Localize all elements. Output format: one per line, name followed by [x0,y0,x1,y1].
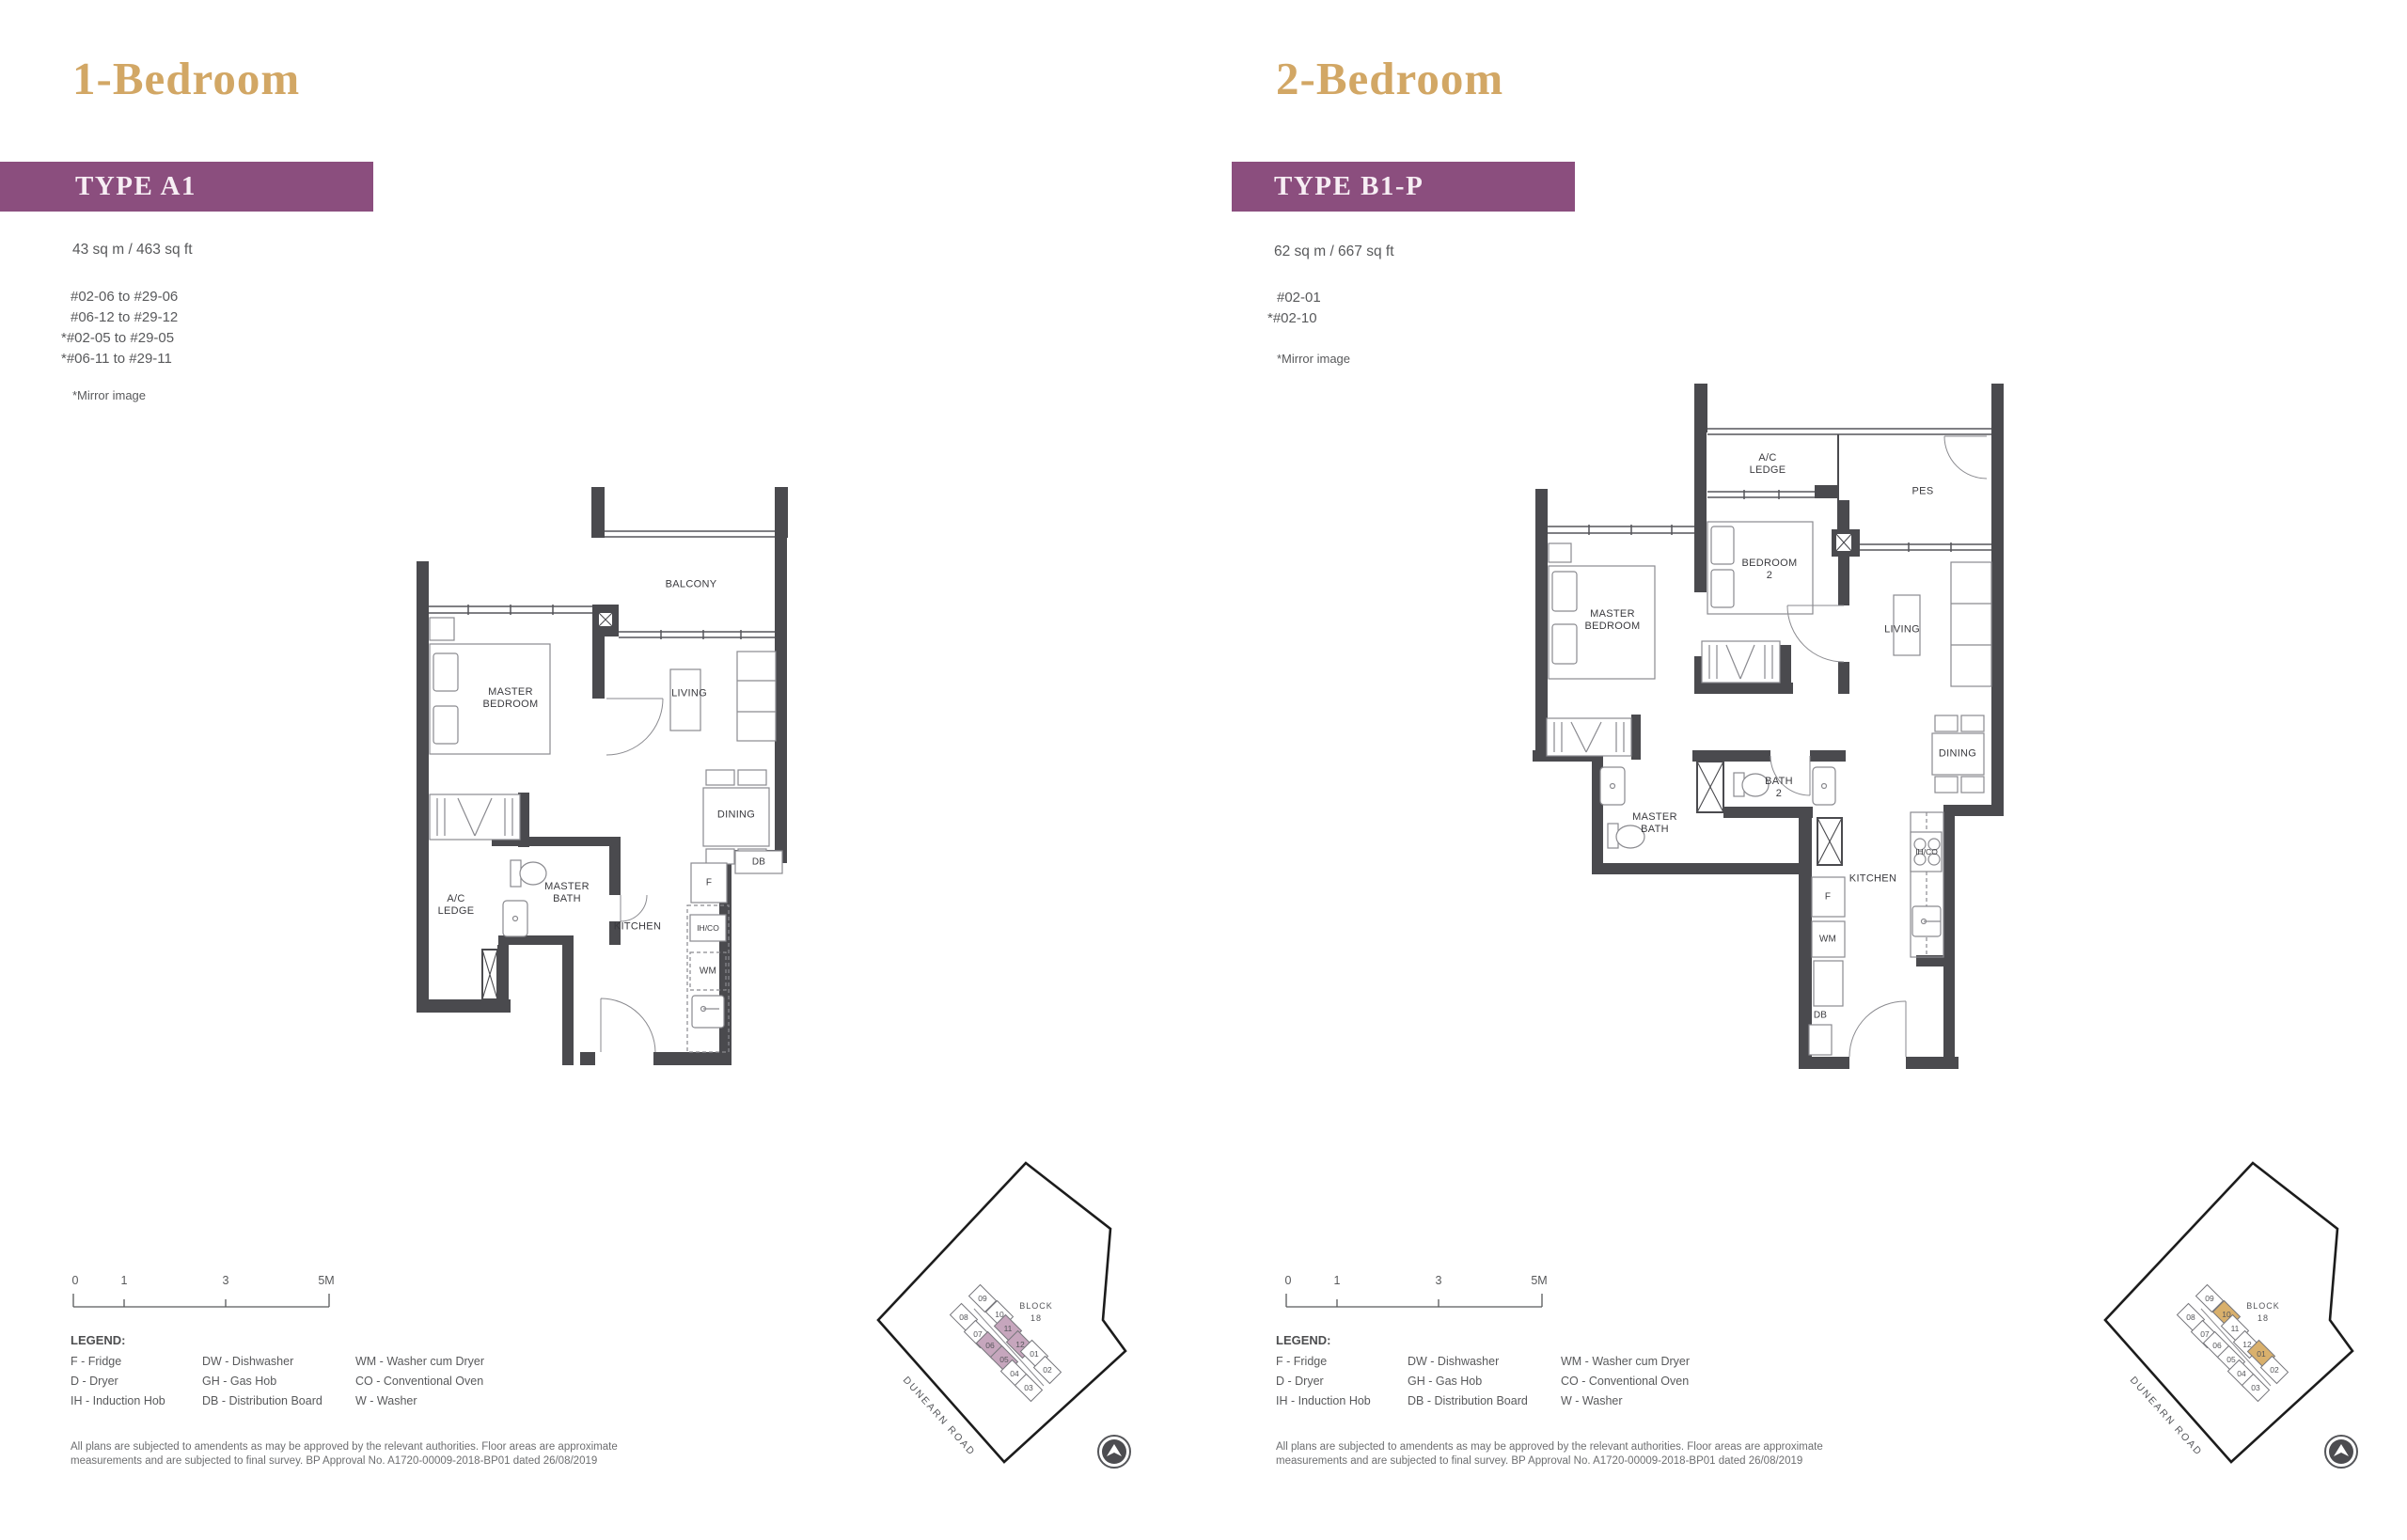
appliance-label-wm: WM [700,966,716,977]
legend-item: F - Fridge [1276,1352,1408,1372]
svg-text:1: 1 [121,1274,128,1287]
room-label-ac-ledge: A/C LEDGE [438,893,475,918]
legend-item: WM - Washer cum Dryer [355,1352,484,1372]
unit-range: #02-06 to #29-06 [61,287,178,307]
unit-range: *#02-05 to #29-05 [61,328,178,349]
room-label-master-bedroom: MASTER BEDROOM [1585,608,1641,633]
site-unit-number: 11 [1004,1324,1013,1333]
area-text-a1: 43 sq m / 463 sq ft [72,242,193,259]
room-label-living: LIVING [671,687,707,699]
site-unit-number: 04 [2237,1369,2246,1378]
legend-item: CO - Conventional Oven [355,1372,484,1391]
svg-text:5M: 5M [318,1274,334,1287]
site-unit-number: 05 [2226,1355,2236,1364]
unit-list-b1p: #02-01 *#02-10 [1267,288,1321,329]
floorplan-a1: BALCONY MASTER BEDROOM LIVING DINING A/C… [417,475,830,1086]
legend-item: F - Fridge [71,1352,202,1372]
north-arrow-icon [1098,1436,1130,1468]
site-unit-number: 09 [978,1294,987,1303]
svg-text:18: 18 [2258,1313,2269,1323]
floorplan-b1p-drawing [1533,384,2012,1070]
legend-item: D - Dryer [1276,1372,1408,1391]
scale-bar-left: 0 1 3 5M [72,1271,345,1311]
legend-item: WM - Washer cum Dryer [1561,1352,1690,1372]
site-unit-number: 09 [2205,1294,2214,1303]
type-label-a1: TYPE A1 [75,171,197,201]
site-unit-number: 03 [1024,1383,1033,1392]
appliance-label-fridge: F [706,878,712,888]
svg-text:5M: 5M [1531,1274,1547,1287]
appliance-label-db: DB [1814,1011,1827,1021]
site-unit-number: 02 [2270,1365,2279,1375]
legend-item: D - Dryer [71,1372,202,1391]
room-label-bedroom2: BEDROOM 2 [1742,558,1798,582]
site-unit-number: 08 [2186,1312,2195,1322]
north-arrow-icon [2325,1436,2357,1468]
site-unit-number: 07 [2200,1329,2210,1339]
appliance-label-ihco: IH/CO [697,923,719,933]
room-label-master-bath: MASTER BATH [544,881,590,905]
legend-item: DW - Dishwasher [202,1352,355,1372]
legend-item: DB - Distribution Board [1408,1391,1561,1411]
unit-range: *#06-11 to #29-11 [61,349,178,369]
floorplan-a1-drawing [417,475,830,1086]
room-label-kitchen: KITCHEN [614,920,661,933]
room-label-dining: DINING [1939,747,1976,760]
svg-text:0: 0 [72,1274,79,1287]
site-unit-number: 01 [2257,1349,2266,1359]
legend-title: LEGEND: [71,1333,484,1347]
type-banner-a1: TYPE A1 [0,162,373,212]
site-unit-number: 01 [1030,1349,1039,1359]
area-text-b1p: 62 sq m / 667 sq ft [1274,244,1394,260]
legend-item: W - Washer [355,1391,484,1411]
unit-range: #06-12 to #29-12 [61,307,178,328]
legend-right: LEGEND: F - Fridge D - Dryer IH - Induct… [1276,1333,1690,1411]
appliance-label-wm: WM [1819,935,1836,945]
unit-range: #02-01 [1267,288,1321,308]
disclaimer-right: All plans are subjected to amendents as … [1276,1440,1823,1469]
scale-bar-right: 0 1 3 5M [1285,1271,1558,1311]
legend-item: DW - Dishwasher [1408,1352,1561,1372]
page-title-2bedroom: 2-Bedroom [1276,52,1503,105]
disclaimer-left: All plans are subjected to amendents as … [71,1440,618,1469]
site-unit-number: 11 [2231,1324,2240,1333]
site-unit-number: 06 [2212,1341,2222,1350]
site-unit-number: 08 [959,1312,968,1322]
site-unit-number: 07 [973,1329,983,1339]
room-label-bath2: BATH 2 [1765,776,1793,800]
site-unit-number: 04 [1010,1369,1019,1378]
legend-item: CO - Conventional Oven [1561,1372,1690,1391]
room-label-ac-ledge: A/C LEDGE [1750,452,1786,477]
block-label: BLOCK [1019,1301,1053,1311]
appliance-label-fridge: F [1825,892,1831,903]
page-title-1bedroom: 1-Bedroom [72,52,300,105]
room-label-pes: PES [1912,485,1934,497]
legend-item: W - Washer [1561,1391,1690,1411]
room-label-dining: DINING [717,809,755,821]
svg-text:1: 1 [1334,1274,1341,1287]
svg-text:18: 18 [1030,1313,1042,1323]
mirror-note-a1: *Mirror image [72,388,146,402]
legend-item: DB - Distribution Board [202,1391,355,1411]
site-unit-number: 12 [2242,1340,2252,1349]
site-plan-right: 091008070611120501040203 BLOCK 18 DUNEAR… [2101,1158,2402,1483]
svg-text:0: 0 [1285,1274,1292,1287]
legend-title: LEGEND: [1276,1333,1690,1347]
legend-left: LEGEND: F - Fridge D - Dryer IH - Induct… [71,1333,484,1411]
floorplan-b1p: A/C LEDGE PES MASTER BEDROOM BEDROOM 2 L… [1533,384,2012,1070]
room-label-kitchen: KITCHEN [1849,872,1896,885]
unit-list-a1: #02-06 to #29-06 #06-12 to #29-12 *#02-0… [61,287,178,369]
appliance-label-db: DB [752,857,765,868]
block-label: BLOCK [2246,1301,2280,1311]
svg-text:3: 3 [223,1274,229,1287]
site-unit-number: 02 [1043,1365,1052,1375]
legend-item: GH - Gas Hob [202,1372,355,1391]
unit-range: *#02-10 [1267,308,1321,329]
site-unit-number: 06 [985,1341,995,1350]
legend-item: IH - Induction Hob [71,1391,202,1411]
type-label-b1p: TYPE B1-P [1274,171,1424,201]
svg-text:3: 3 [1436,1274,1442,1287]
site-unit-number: 12 [1015,1340,1025,1349]
site-unit-number: 03 [2251,1383,2260,1392]
floorplan-page: 1-Bedroom TYPE A1 43 sq m / 463 sq ft #0… [0,0,2407,1540]
room-label-master-bath: MASTER BATH [1632,811,1677,836]
type-banner-b1p: TYPE B1-P [1232,162,1575,212]
room-label-master-bedroom: MASTER BEDROOM [483,686,539,711]
appliance-label-ihco: IH/CO [1915,847,1938,856]
mirror-note-b1p: *Mirror image [1277,352,1350,366]
room-label-living: LIVING [1884,623,1920,636]
room-label-balcony: BALCONY [666,578,717,590]
site-plan-left: 091008070611120501040203 BLOCK 18 DUNEAR… [874,1158,1175,1483]
site-unit-number: 05 [999,1355,1009,1364]
legend-item: GH - Gas Hob [1408,1372,1561,1391]
legend-item: IH - Induction Hob [1276,1391,1408,1411]
